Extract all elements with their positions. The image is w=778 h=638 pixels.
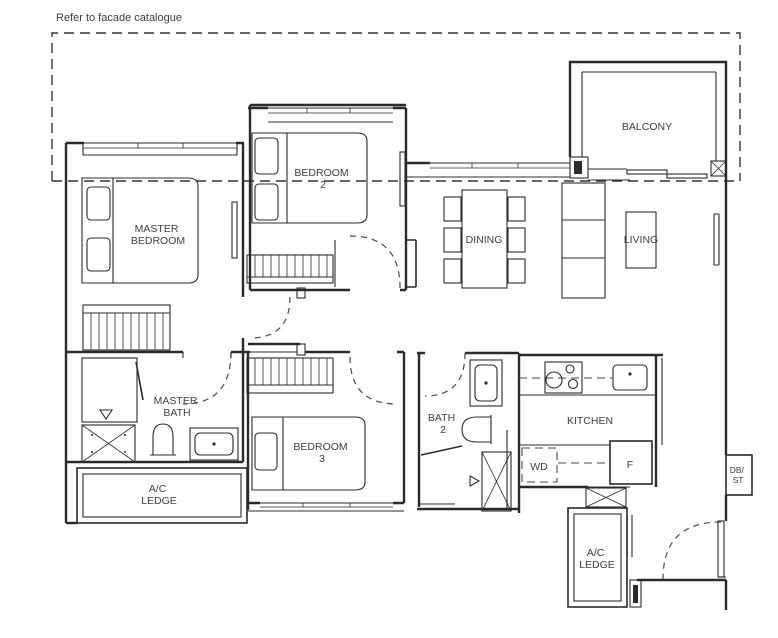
- room-label-balcony: BALCONY: [622, 121, 672, 133]
- washer-dryer-label: WD: [530, 461, 548, 473]
- floor-plan-page: Refer to facade catalogue: [0, 0, 778, 638]
- room-label-living: LIVING: [624, 234, 658, 246]
- fridge-label: F: [627, 459, 633, 471]
- room-label-master-bedroom: MASTER BEDROOM: [131, 223, 185, 247]
- canvas-background: [0, 0, 778, 638]
- room-label-dining: DINING: [466, 234, 503, 246]
- floor-plan-svg: Refer to facade catalogue: [0, 0, 778, 638]
- room-label-kitchen: KITCHEN: [567, 415, 613, 427]
- facade-note: Refer to facade catalogue: [56, 12, 182, 24]
